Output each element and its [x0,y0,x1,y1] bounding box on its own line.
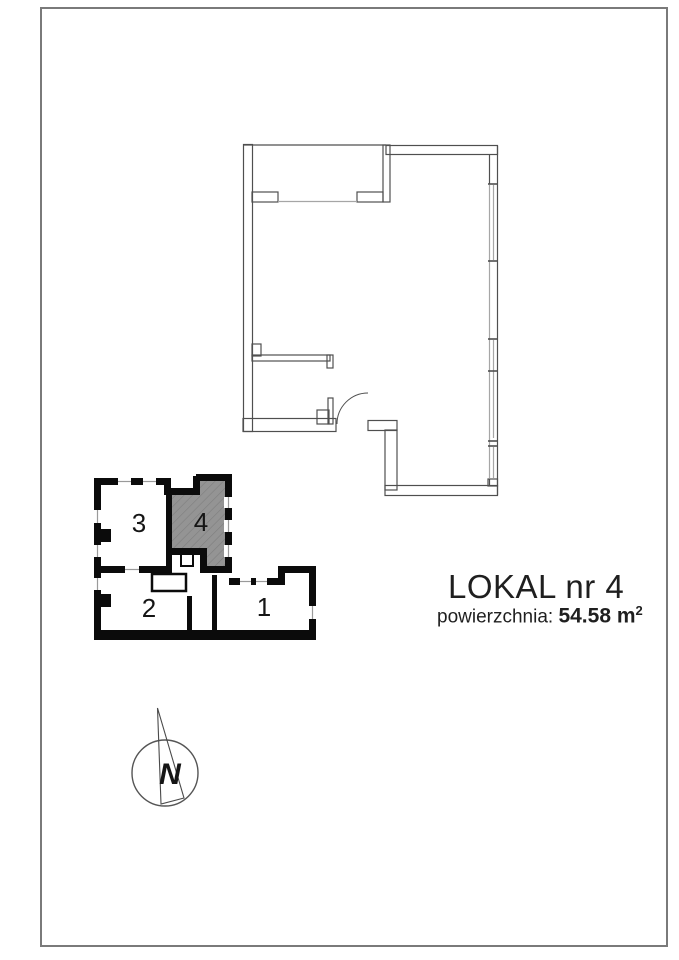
north-label: N [159,758,182,791]
door-swing-arc [337,393,368,424]
north-arrow: N [132,708,198,806]
key-plan: 1 2 3 4 [93,474,317,640]
floor-plan-drawing: 1 2 3 4 N [0,0,679,960]
stairwell-notch [181,554,193,566]
area-caption: powierzchnia: 54.58 m2 [437,603,643,628]
balcony-wall-right [357,192,383,202]
bathroom-box [152,574,186,591]
plan-sheet: 1 2 3 4 N LOKAL nr 4 powierzchnia: 54.58… [0,0,679,960]
balcony-wall-left [252,192,278,202]
area-value: 54.58 m [558,604,635,627]
area-exponent: 2 [636,603,643,618]
unit-4-label: 4 [194,507,208,537]
wall-pier [252,344,261,356]
unit-3-label: 3 [132,508,146,538]
unit-2-label: 2 [142,593,156,623]
door-jamb-wall [368,421,397,431]
unit-1-label: 1 [257,592,271,622]
small-room-wall [252,355,330,361]
main-unit-plan [243,145,498,496]
main-bottom-wall-right [385,486,498,496]
area-label: powierzchnia: [437,606,553,627]
door-frame-block [317,410,329,424]
step-wall [385,430,397,490]
right-wall-windows [490,185,494,478]
main-bottom-wall-left [243,419,336,432]
page-title: LOKAL nr 4 [448,568,624,606]
main-top-wall [386,146,498,155]
main-left-wall [244,145,253,432]
